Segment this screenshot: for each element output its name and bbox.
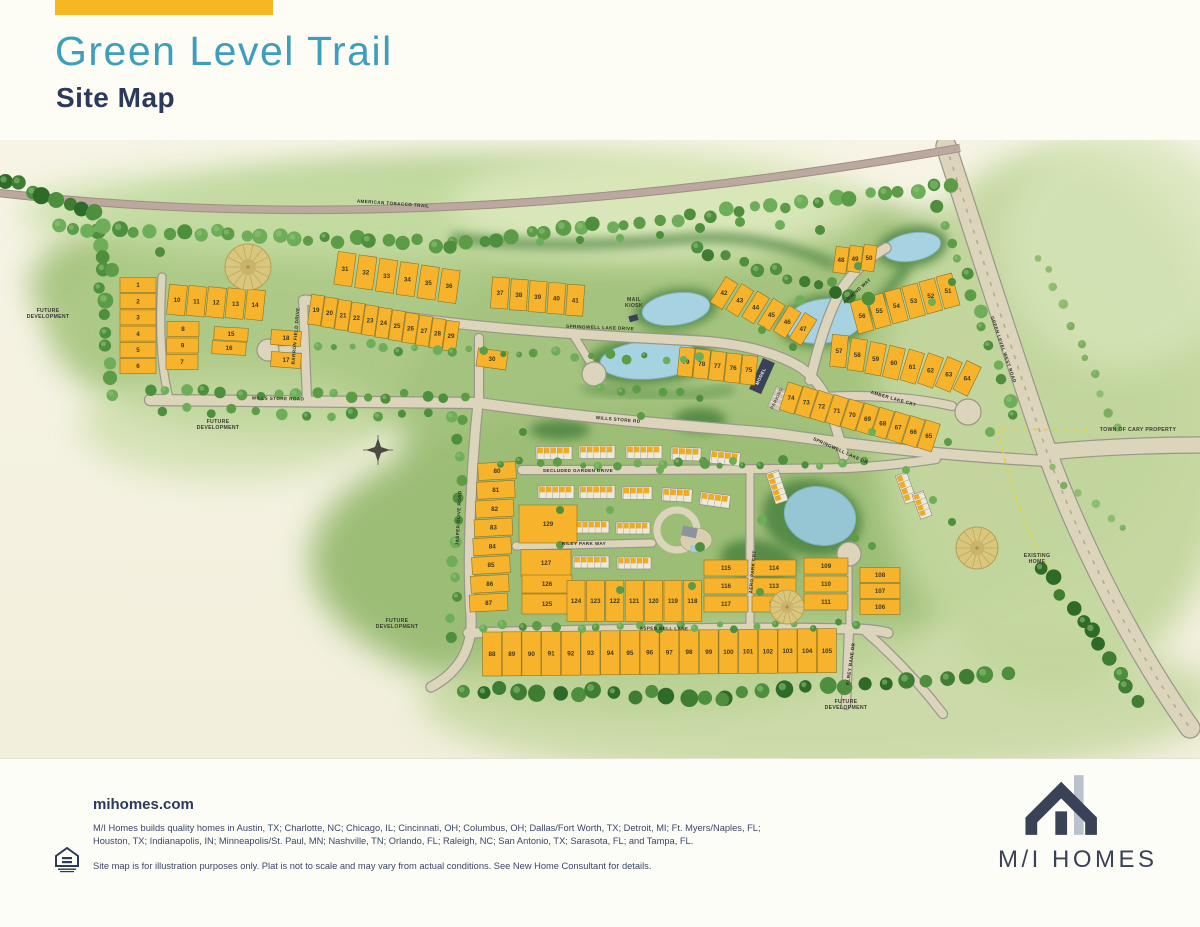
tree — [814, 280, 823, 289]
lot-97: 97 — [660, 630, 679, 674]
svg-text:101: 101 — [743, 649, 754, 656]
tree — [459, 235, 473, 249]
tree — [411, 234, 422, 245]
lot-10: 10 — [166, 284, 187, 316]
tree — [715, 693, 729, 707]
tree — [695, 223, 705, 233]
tree — [605, 349, 615, 359]
tree — [854, 262, 862, 270]
lot-92: 92 — [561, 631, 580, 675]
lot-84: 84 — [473, 537, 512, 556]
tree — [158, 407, 168, 417]
area-label: TOWN OF CARY PROPERTY — [1100, 427, 1177, 433]
tree — [1067, 601, 1082, 616]
lot-3: 3 — [120, 310, 156, 325]
tree — [1060, 482, 1067, 489]
svg-text:100: 100 — [723, 649, 734, 656]
tree — [734, 206, 745, 217]
tree — [930, 180, 939, 189]
lot-115: 115 — [704, 560, 748, 576]
tree — [492, 681, 506, 695]
svg-text:34: 34 — [404, 276, 412, 283]
tree — [438, 393, 448, 403]
svg-text:9: 9 — [181, 343, 185, 350]
svg-text:37: 37 — [496, 290, 504, 297]
tree — [695, 352, 704, 361]
tree — [959, 669, 975, 685]
tree — [346, 392, 358, 404]
tree — [948, 278, 956, 286]
svg-text:120: 120 — [648, 598, 659, 605]
svg-text:2: 2 — [136, 298, 140, 305]
tree — [95, 218, 110, 233]
townhome-building — [616, 522, 650, 534]
tree — [720, 250, 730, 260]
community-title: Green Level Trail — [55, 28, 393, 75]
tree — [457, 475, 468, 486]
lot-91: 91 — [542, 631, 561, 675]
tree — [446, 556, 457, 567]
tree — [929, 496, 937, 504]
lot-93: 93 — [581, 631, 600, 675]
svg-text:56: 56 — [858, 313, 866, 320]
svg-text:12: 12 — [212, 300, 220, 307]
mi-homes-logo-text: M/I HOMES — [998, 846, 1150, 874]
svg-text:127: 127 — [541, 560, 552, 567]
tree — [616, 586, 624, 594]
svg-text:30: 30 — [488, 356, 496, 363]
svg-text:93: 93 — [587, 650, 595, 657]
tree — [1054, 589, 1066, 601]
svg-text:66: 66 — [910, 429, 918, 436]
tree — [1103, 408, 1112, 417]
svg-text:27: 27 — [420, 328, 428, 335]
tree — [142, 224, 156, 238]
lot-82: 82 — [475, 499, 514, 518]
svg-text:81: 81 — [492, 487, 500, 494]
tree — [532, 621, 542, 631]
svg-text:121: 121 — [629, 598, 640, 605]
svg-text:43: 43 — [736, 297, 744, 304]
svg-text:48: 48 — [837, 257, 845, 264]
lot-104: 104 — [798, 629, 817, 673]
mi-homes-logo: M/I HOMES — [998, 773, 1150, 874]
tree — [1002, 667, 1015, 680]
lot-79: 79 — [677, 347, 695, 377]
svg-text:68: 68 — [879, 420, 887, 427]
tree — [553, 457, 562, 466]
tree — [820, 677, 837, 694]
svg-text:55: 55 — [876, 308, 884, 315]
tree — [1132, 695, 1145, 708]
tree — [398, 410, 406, 418]
tree — [350, 343, 356, 349]
tree — [588, 353, 594, 359]
tree — [400, 389, 409, 398]
svg-text:102: 102 — [763, 648, 774, 655]
tree — [974, 305, 988, 319]
tree — [944, 178, 958, 192]
page-footer: mihomes.com M/I Homes builds quality hom… — [0, 758, 1200, 927]
tree — [465, 345, 472, 352]
tree — [576, 236, 584, 244]
tree — [571, 687, 586, 702]
tree — [948, 518, 956, 526]
lot-76: 76 — [724, 353, 742, 383]
svg-text:115: 115 — [721, 565, 732, 572]
lot-124: 124 — [567, 581, 585, 622]
road-label: RILEY PARK WAY — [562, 541, 606, 546]
svg-text:58: 58 — [854, 352, 862, 359]
website-link[interactable]: mihomes.com — [93, 796, 194, 813]
svg-text:51: 51 — [944, 288, 952, 295]
svg-text:42: 42 — [720, 290, 728, 297]
tree — [128, 227, 139, 238]
tree — [1091, 637, 1105, 651]
tree — [902, 466, 910, 474]
tree — [695, 542, 705, 552]
tree — [841, 191, 856, 206]
lot-14: 14 — [244, 289, 265, 321]
tree — [892, 186, 904, 198]
tree — [868, 428, 876, 436]
tree — [585, 217, 599, 231]
tree — [865, 187, 875, 197]
svg-text:108: 108 — [875, 572, 886, 579]
lot-127: 127 — [521, 550, 571, 577]
tree — [996, 374, 1006, 384]
svg-text:95: 95 — [626, 650, 634, 657]
tree — [622, 355, 632, 365]
svg-text:39: 39 — [534, 294, 542, 301]
svg-text:83: 83 — [490, 525, 498, 532]
tree — [684, 208, 696, 220]
lot-116: 116 — [704, 578, 748, 594]
svg-text:80: 80 — [493, 468, 501, 475]
lot-86: 86 — [470, 574, 509, 593]
townhome-building — [538, 486, 574, 499]
tree — [446, 632, 457, 643]
tree — [658, 688, 675, 705]
lot-16: 16 — [212, 341, 247, 356]
svg-text:22: 22 — [353, 315, 361, 322]
svg-text:14: 14 — [251, 302, 259, 309]
tree — [556, 506, 564, 514]
landmark-tree — [956, 527, 998, 569]
svg-text:35: 35 — [425, 280, 433, 287]
tree — [801, 461, 808, 468]
lot-13: 13 — [225, 288, 246, 320]
svg-text:46: 46 — [784, 319, 792, 326]
svg-text:94: 94 — [607, 650, 615, 657]
svg-text:99: 99 — [705, 649, 713, 656]
lot-7: 7 — [166, 355, 198, 370]
tree — [214, 387, 226, 399]
svg-text:113: 113 — [769, 583, 780, 590]
svg-text:5: 5 — [136, 347, 140, 354]
townhome-building — [579, 446, 615, 459]
townhome-building — [617, 557, 651, 569]
tree — [827, 277, 837, 287]
tree — [717, 621, 723, 627]
tree — [242, 230, 253, 241]
lot-126: 126 — [522, 575, 572, 593]
lot-39: 39 — [528, 281, 547, 313]
svg-text:92: 92 — [567, 650, 575, 657]
tree — [815, 225, 825, 235]
svg-text:53: 53 — [910, 298, 918, 305]
tree — [619, 220, 629, 230]
svg-text:23: 23 — [366, 318, 374, 325]
tree — [80, 224, 94, 238]
svg-text:85: 85 — [487, 562, 495, 569]
tree — [851, 534, 859, 542]
tree — [859, 677, 872, 690]
lot-1: 1 — [120, 278, 156, 293]
tree — [504, 229, 519, 244]
lot-80: 80 — [478, 462, 517, 481]
cul-de-sac — [955, 399, 981, 425]
tree — [985, 427, 995, 437]
svg-text:117: 117 — [721, 601, 732, 608]
svg-text:45: 45 — [768, 312, 776, 319]
area-label: MAILKIOSK — [625, 297, 643, 309]
tree — [795, 295, 805, 305]
lot-103: 103 — [778, 629, 797, 673]
tree — [327, 413, 336, 422]
tree — [519, 428, 527, 436]
lot-83: 83 — [474, 518, 513, 537]
townhome-building — [579, 486, 615, 499]
markets-text: M/I Homes builds quality homes in Austin… — [93, 822, 769, 849]
svg-text:118: 118 — [687, 598, 698, 605]
tree — [965, 289, 977, 301]
svg-text:25: 25 — [393, 323, 401, 330]
tree — [736, 686, 748, 698]
tree — [423, 391, 434, 402]
svg-text:4: 4 — [136, 331, 140, 338]
tree — [1049, 464, 1056, 471]
svg-text:28: 28 — [434, 331, 442, 338]
tree — [696, 395, 703, 402]
svg-text:18: 18 — [282, 335, 290, 342]
svg-text:70: 70 — [849, 412, 857, 419]
svg-text:84: 84 — [489, 543, 497, 550]
tree — [607, 221, 619, 233]
lot-101: 101 — [739, 629, 758, 673]
lot-96: 96 — [640, 630, 659, 674]
tree — [99, 309, 110, 320]
tree — [829, 286, 842, 299]
svg-text:88: 88 — [488, 651, 496, 658]
road — [276, 349, 304, 350]
lot-119: 119 — [664, 581, 682, 622]
lot-111: 111 — [804, 594, 848, 610]
road — [1048, 445, 1200, 452]
tree — [457, 415, 467, 425]
lot-11: 11 — [186, 285, 207, 317]
tree — [930, 200, 943, 213]
site-map-illustration: 1234561011121314897151618171920212223242… — [0, 140, 1200, 758]
svg-text:7: 7 — [180, 359, 184, 366]
tree — [948, 239, 958, 249]
tree — [553, 686, 568, 701]
tree — [633, 217, 645, 229]
tree — [672, 214, 685, 227]
svg-text:54: 54 — [893, 303, 901, 310]
lot-9: 9 — [167, 338, 199, 353]
tree — [780, 203, 791, 214]
tree — [451, 434, 462, 445]
svg-text:3: 3 — [136, 315, 140, 322]
tree — [868, 542, 876, 550]
svg-text:15: 15 — [227, 331, 235, 338]
tree — [1096, 390, 1103, 397]
tree — [87, 204, 103, 220]
svg-text:122: 122 — [610, 598, 621, 605]
lot-98: 98 — [680, 630, 699, 674]
tree — [461, 393, 470, 402]
svg-text:62: 62 — [927, 368, 935, 375]
svg-text:89: 89 — [508, 651, 516, 658]
tree — [331, 344, 337, 350]
tree — [654, 215, 665, 226]
lot-8: 8 — [167, 322, 199, 337]
lot-88: 88 — [483, 632, 502, 676]
tree — [536, 238, 544, 246]
svg-text:106: 106 — [875, 604, 886, 611]
svg-text:19: 19 — [312, 307, 320, 314]
svg-text:110: 110 — [821, 581, 832, 588]
lot-2: 2 — [120, 294, 156, 309]
tree — [632, 385, 641, 394]
svg-text:124: 124 — [571, 598, 582, 605]
svg-text:60: 60 — [890, 360, 898, 367]
lot-5: 5 — [120, 342, 156, 357]
lot-110: 110 — [804, 576, 848, 592]
tree — [33, 187, 50, 204]
tree — [688, 582, 696, 590]
lot-38: 38 — [509, 279, 528, 311]
svg-text:74: 74 — [787, 395, 795, 402]
tree — [226, 404, 236, 414]
townhome-building — [573, 556, 609, 568]
svg-text:107: 107 — [875, 588, 886, 595]
svg-text:6: 6 — [136, 363, 140, 370]
svg-text:97: 97 — [666, 649, 674, 656]
svg-text:44: 44 — [752, 305, 760, 312]
tree — [529, 349, 538, 358]
tree — [606, 506, 614, 514]
townhome-building — [622, 487, 652, 500]
lot-120: 120 — [645, 581, 663, 622]
accent-bar — [55, 0, 273, 15]
lot-106: 106 — [860, 600, 900, 615]
tree — [366, 339, 375, 348]
tree — [862, 292, 876, 306]
disclaimer-text: Site map is for illustration purposes on… — [93, 861, 783, 871]
tree — [920, 675, 933, 688]
svg-text:47: 47 — [799, 326, 807, 333]
svg-text:104: 104 — [802, 648, 813, 655]
tree — [570, 353, 579, 362]
tree — [663, 357, 671, 365]
tree — [479, 346, 488, 355]
lot-89: 89 — [502, 632, 521, 676]
svg-text:114: 114 — [769, 565, 780, 572]
lot-12: 12 — [205, 287, 226, 319]
tree — [395, 236, 409, 250]
svg-text:1: 1 — [136, 282, 140, 289]
svg-text:78: 78 — [698, 361, 706, 368]
tree — [443, 240, 456, 253]
tree — [331, 236, 344, 249]
lot-100: 100 — [719, 630, 738, 674]
tree — [775, 220, 785, 230]
mi-homes-logo-mark — [1019, 773, 1129, 837]
lot-41: 41 — [566, 284, 585, 316]
tree — [207, 409, 216, 418]
svg-text:125: 125 — [542, 601, 553, 608]
svg-text:119: 119 — [668, 598, 679, 605]
svg-text:31: 31 — [341, 266, 349, 273]
tree — [252, 407, 260, 415]
lot-94: 94 — [601, 631, 620, 675]
lot-95: 95 — [620, 631, 639, 675]
svg-text:40: 40 — [553, 296, 561, 303]
tree — [105, 263, 119, 277]
svg-text:75: 75 — [745, 367, 753, 374]
lot-107: 107 — [860, 584, 900, 599]
svg-text:13: 13 — [232, 301, 240, 308]
svg-text:65: 65 — [925, 433, 933, 440]
cul-de-sac — [582, 362, 606, 386]
lot-108: 108 — [860, 568, 900, 583]
tree — [656, 466, 664, 474]
tree — [104, 357, 116, 369]
svg-text:32: 32 — [362, 270, 370, 277]
lot-81: 81 — [476, 480, 515, 499]
tree — [735, 217, 745, 227]
svg-text:29: 29 — [447, 333, 455, 340]
svg-text:59: 59 — [872, 356, 880, 363]
equal-housing-icon — [55, 847, 79, 873]
svg-text:71: 71 — [833, 408, 841, 415]
tree — [758, 326, 766, 334]
tree — [1108, 515, 1116, 523]
tree — [378, 343, 387, 352]
townhome-building — [626, 446, 662, 459]
tree — [750, 201, 760, 211]
tree — [753, 623, 760, 630]
tree — [383, 234, 396, 247]
lot-4: 4 — [120, 326, 156, 341]
lot-125: 125 — [522, 594, 572, 614]
tree — [312, 387, 323, 398]
tree — [1045, 266, 1052, 273]
tree — [680, 356, 687, 363]
svg-text:129: 129 — [543, 521, 554, 528]
tree — [145, 385, 156, 396]
tree — [613, 462, 622, 471]
townhome-building — [662, 488, 693, 503]
lot-40: 40 — [547, 282, 566, 314]
lot-15: 15 — [214, 327, 249, 342]
svg-text:61: 61 — [909, 364, 917, 371]
svg-text:63: 63 — [945, 372, 953, 379]
svg-text:73: 73 — [803, 399, 811, 406]
tree — [994, 360, 1004, 370]
